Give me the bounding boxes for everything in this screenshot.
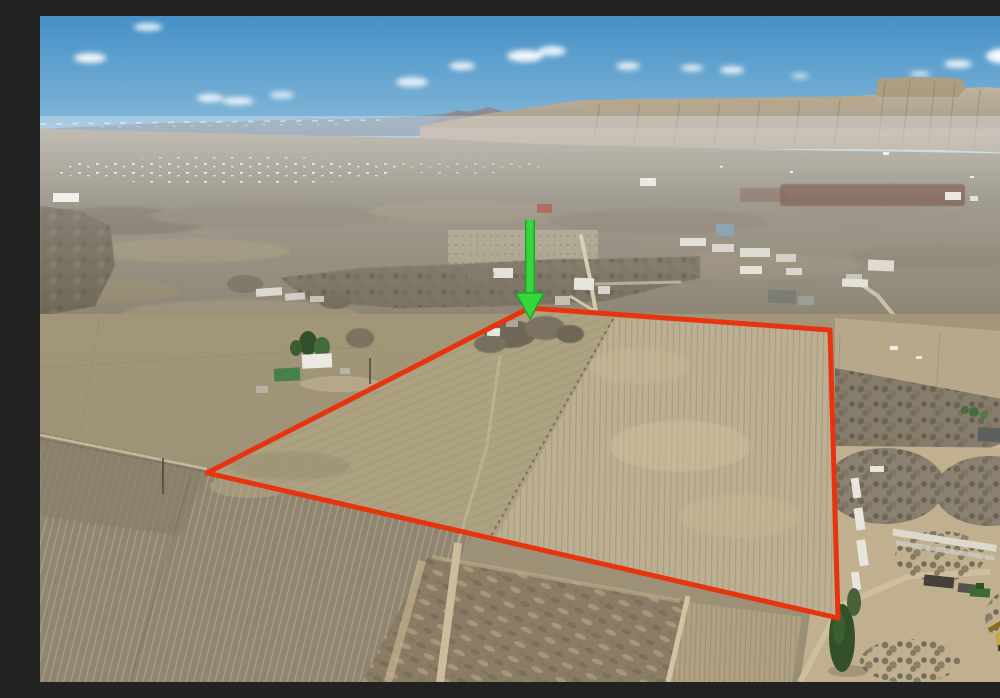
mt-garfield-mesa (876, 77, 966, 97)
green-roof-barn (274, 367, 301, 381)
aerial-photo (40, 16, 1000, 682)
